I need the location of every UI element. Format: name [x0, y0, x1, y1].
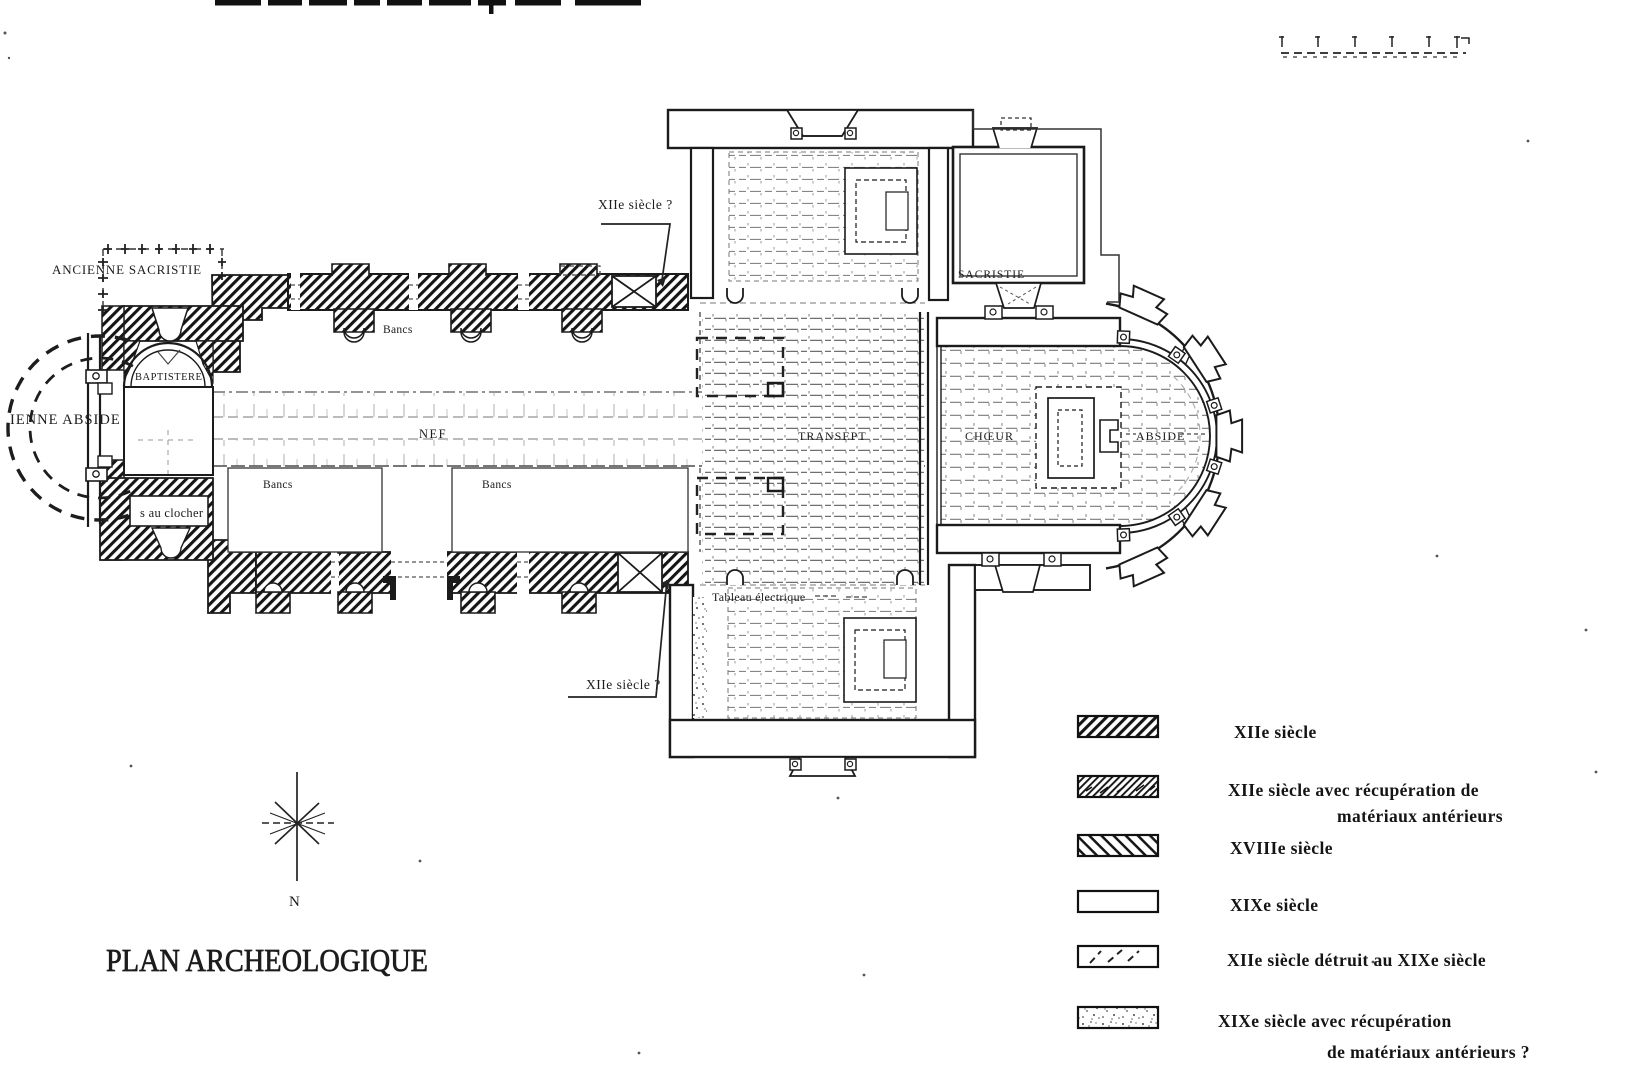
svg-text:XIIe siècle ?: XIIe siècle ?	[586, 677, 661, 692]
svg-text:PLAN ARCHEOLOGIQUE: PLAN ARCHEOLOGIQUE	[106, 943, 428, 978]
svg-text:NEF: NEF	[419, 427, 447, 441]
svg-text:TRANSEPT: TRANSEPT	[798, 429, 867, 443]
svg-text:XIIe siècle détruit au XIXe si: XIIe siècle détruit au XIXe siècle	[1227, 950, 1486, 970]
svg-text:XIIe siècle avec récupération: XIIe siècle avec récupération de	[1228, 780, 1479, 800]
svg-text:Bancs: Bancs	[482, 479, 512, 491]
svg-text:XIIe siècle: XIIe siècle	[1234, 722, 1317, 742]
svg-text:matériaux antérieurs: matériaux antérieurs	[1337, 806, 1503, 826]
svg-text:N: N	[289, 894, 300, 910]
svg-text:XIXe siècle: XIXe siècle	[1230, 895, 1318, 915]
svg-text:XIXe siècle avec récupération: XIXe siècle avec récupération	[1218, 1011, 1452, 1031]
svg-text:Tableau électrique: Tableau électrique	[712, 590, 806, 604]
svg-text:ANCIENNE SACRISTIE: ANCIENNE SACRISTIE	[52, 262, 202, 277]
svg-text:s au clocher: s au clocher	[140, 506, 204, 520]
svg-text:Bancs: Bancs	[383, 324, 413, 336]
svg-text:ABSIDE: ABSIDE	[1136, 429, 1185, 443]
svg-text:Bancs: Bancs	[263, 479, 293, 491]
svg-text:IENNE ABSIDE: IENNE ABSIDE	[10, 412, 121, 428]
svg-text:CHŒUR: CHŒUR	[965, 429, 1014, 443]
svg-text:SACRISTIE: SACRISTIE	[958, 269, 1025, 281]
svg-text:XVIIIe siècle: XVIIIe siècle	[1230, 838, 1333, 858]
svg-text:BAPTISTERE: BAPTISTERE	[135, 372, 202, 383]
svg-text:de matériaux antérieurs ?: de matériaux antérieurs ?	[1327, 1042, 1530, 1062]
svg-text:XIIe siècle ?: XIIe siècle ?	[598, 197, 673, 212]
